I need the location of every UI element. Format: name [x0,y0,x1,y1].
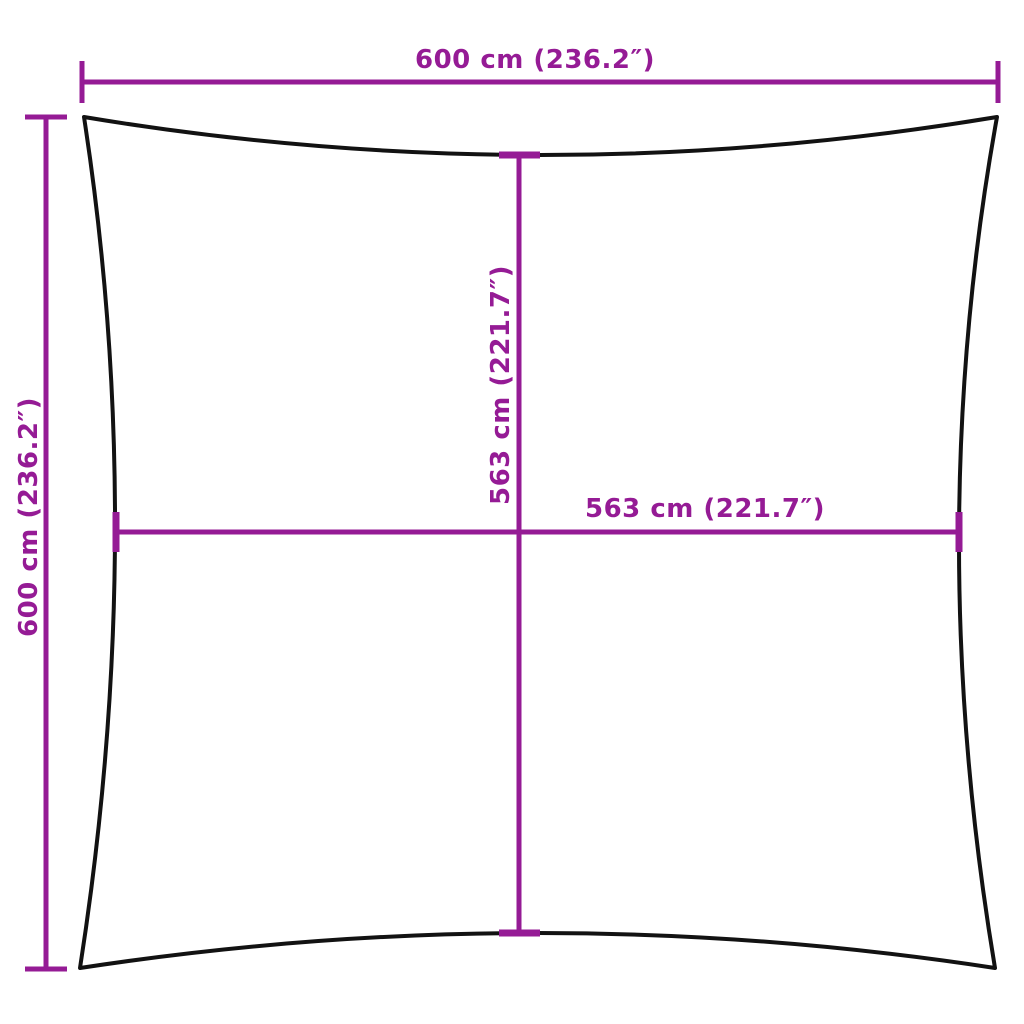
top-width-label: 600 cm (236.2″) [415,45,655,75]
diagram-graphics [0,0,1024,1024]
sail-outline [80,117,997,968]
left-height-label: 600 cm (236.2″) [14,397,44,637]
dimension-diagram: 600 cm (236.2″) 600 cm (236.2″) 563 cm (… [0,0,1024,1024]
inner-height-label: 563 cm (221.7″) [486,265,516,505]
inner-width-label: 563 cm (221.7″) [585,494,825,524]
